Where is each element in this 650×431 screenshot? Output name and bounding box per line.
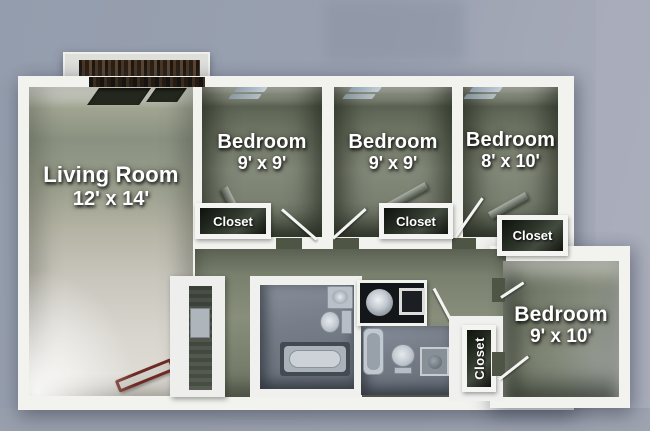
bathtub-2-fixture bbox=[363, 328, 384, 375]
bedroom-2-label-block: Bedroom 9' x 9' bbox=[334, 131, 452, 174]
vanity-sink-bowl bbox=[366, 289, 393, 316]
toilet-fixture bbox=[320, 311, 340, 333]
bedroom-4-doorway bbox=[492, 278, 505, 302]
bedroom-3-label: Bedroom bbox=[463, 129, 558, 151]
bedroom-3-label-block: Bedroom 8' x 10' bbox=[463, 129, 558, 172]
vanity-mirror bbox=[399, 288, 425, 315]
backdrop-shadow-top bbox=[325, 0, 465, 62]
bedroom-1-closet-label: Closet bbox=[213, 214, 253, 229]
bedroom-1-closet: Closet bbox=[195, 203, 271, 239]
bedroom-1-label-block: Bedroom 9' x 9' bbox=[202, 131, 322, 174]
bedroom-2-label: Bedroom bbox=[334, 131, 452, 153]
bedroom-1-label: Bedroom bbox=[202, 131, 322, 153]
window-icon bbox=[228, 94, 262, 99]
toilet-2-base bbox=[394, 367, 412, 374]
floor-plan-image: Living Room 12' x 14' Bedroom 9' x 9' Be… bbox=[0, 0, 650, 431]
bedroom-4-label-block: Bedroom 9' x 10' bbox=[503, 303, 619, 348]
laundry-closet bbox=[170, 276, 225, 397]
bathtub-fixture bbox=[280, 342, 350, 376]
bedroom-4-dims: 9' x 10' bbox=[503, 327, 619, 348]
bedroom-2-closet: Closet bbox=[379, 203, 453, 239]
bedroom-2-closet-label: Closet bbox=[396, 214, 436, 229]
living-room-dims: 12' x 14' bbox=[29, 188, 193, 210]
bedroom-2-doorway bbox=[333, 238, 359, 249]
bathtub-bowl bbox=[289, 350, 341, 368]
sink-fixture bbox=[327, 286, 353, 309]
ceiling-opening-icon bbox=[87, 88, 151, 105]
bedroom-1-dims: 9' x 9' bbox=[202, 154, 322, 174]
vanity-counter bbox=[357, 280, 427, 326]
window-icon bbox=[348, 87, 382, 92]
bedroom-4: Bedroom 9' x 10' bbox=[503, 261, 619, 397]
bedroom-3-dims: 8' x 10' bbox=[463, 152, 558, 172]
bedroom-3-doorway bbox=[452, 238, 476, 249]
sink-bowl bbox=[332, 290, 348, 304]
bench-furniture bbox=[115, 358, 176, 393]
bedroom-1-doorway bbox=[276, 238, 302, 249]
living-room-label: Living Room bbox=[29, 163, 193, 187]
bedroom-4-upper-closet-label: Closet bbox=[513, 228, 553, 243]
hall-closet: Closet bbox=[462, 325, 496, 392]
bedroom-2-dims: 9' x 9' bbox=[334, 154, 452, 174]
living-room: Living Room 12' x 14' bbox=[29, 87, 193, 396]
laundry-panel bbox=[190, 308, 210, 338]
bathtub-2-bowl bbox=[367, 333, 380, 370]
window-icon bbox=[469, 87, 503, 92]
bedroom-4-closet-doorway bbox=[492, 352, 505, 376]
living-room-label-block: Living Room 12' x 14' bbox=[29, 163, 193, 210]
ceiling-opening-icon bbox=[146, 88, 187, 102]
window-icon bbox=[234, 87, 268, 92]
window-icon bbox=[342, 94, 376, 99]
laundry-door bbox=[189, 286, 212, 390]
toilet-tank bbox=[341, 310, 352, 334]
hall-closet-label: Closet bbox=[472, 337, 487, 380]
toilet-2-fixture bbox=[391, 344, 415, 367]
window-icon bbox=[463, 94, 497, 99]
bedroom-4-label: Bedroom bbox=[503, 303, 619, 326]
bath-cabinet-fixture bbox=[420, 347, 449, 376]
backdrop-band-bottom bbox=[0, 408, 650, 431]
bedroom-4-upper-closet: Closet bbox=[497, 215, 568, 256]
balcony-door-opening bbox=[89, 77, 205, 87]
bath-cabinet-basin bbox=[428, 355, 442, 369]
